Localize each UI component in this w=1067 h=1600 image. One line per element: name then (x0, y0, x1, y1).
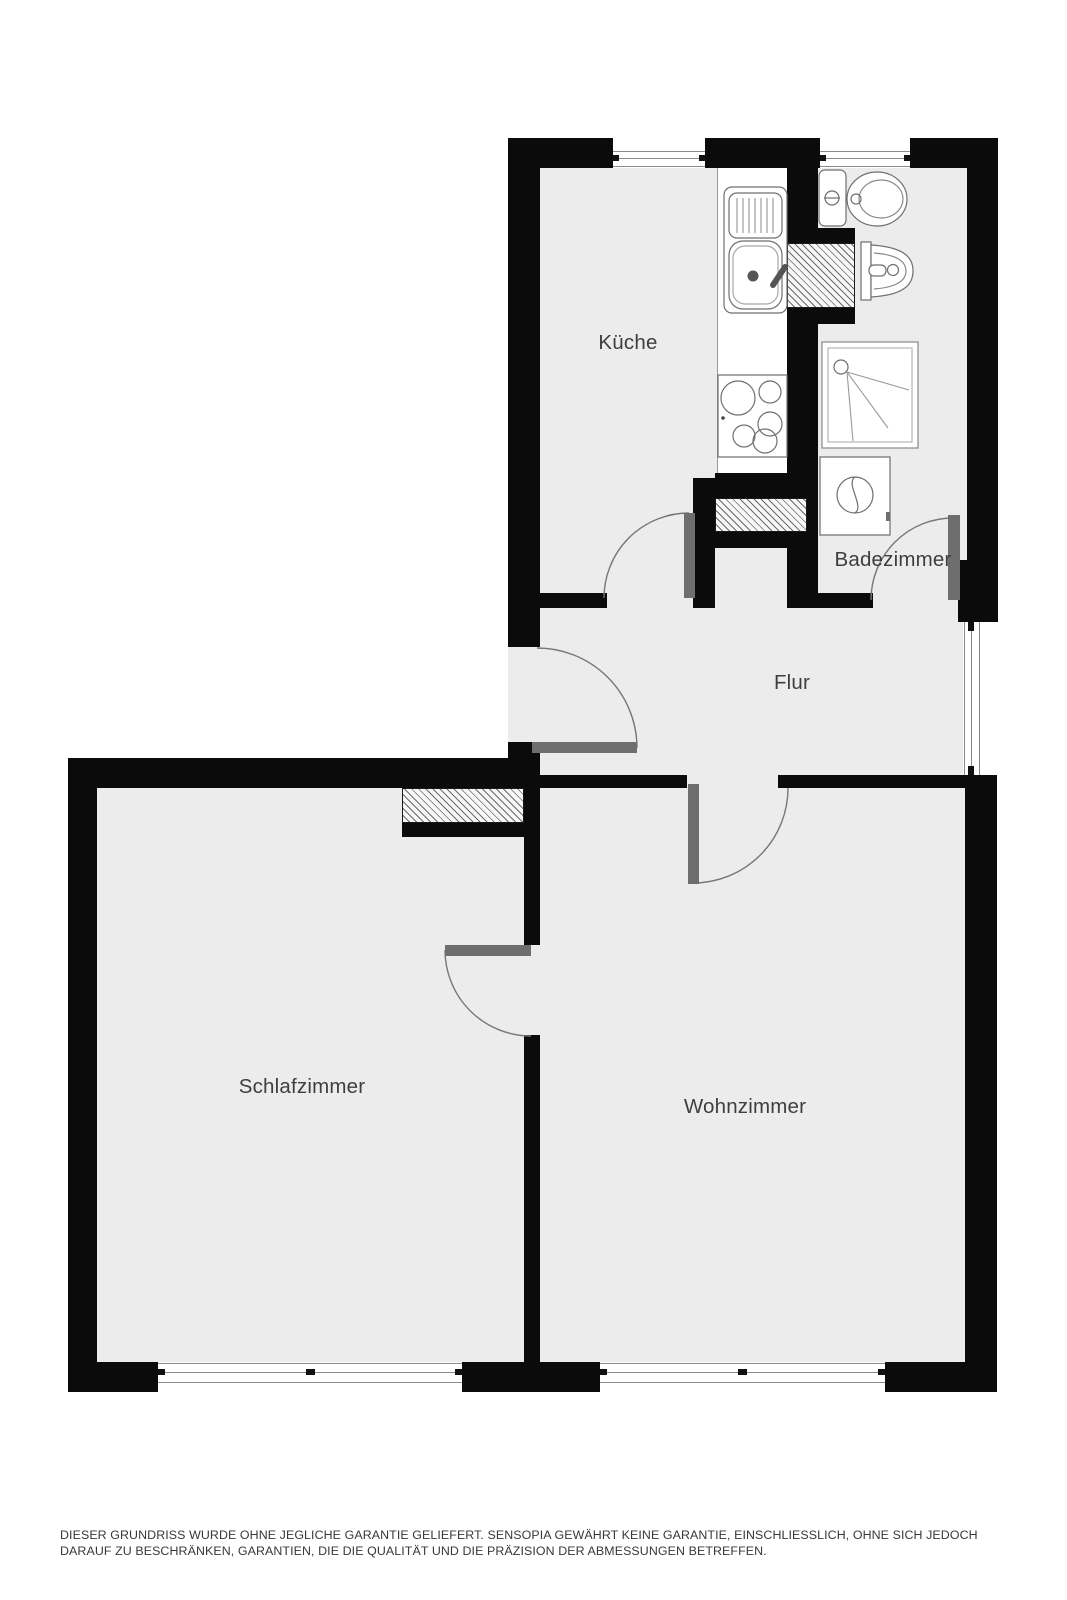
wall-left-upper (508, 138, 540, 647)
shaft-hatch-bad (787, 243, 855, 308)
floor-entry-threshold (508, 647, 540, 742)
schlafzimmer-door-leaf (445, 945, 531, 956)
window-tick (699, 155, 705, 161)
wall-schlafzimmer-top (68, 758, 540, 788)
kueche-door-leaf (684, 513, 695, 598)
kitchen-counter (717, 168, 787, 473)
window-line (964, 622, 965, 775)
wall-bad-bottom (807, 593, 873, 608)
window-line (979, 622, 980, 775)
wall-right-upper (967, 138, 998, 622)
window-line (613, 158, 705, 159)
window-tick (738, 1369, 747, 1375)
window-line (613, 166, 705, 167)
badezimmer-window (820, 138, 910, 168)
window-tick (968, 766, 974, 775)
window-tick (158, 1369, 165, 1375)
window-line (158, 1363, 462, 1364)
wall-kueche-door-stub (693, 478, 715, 608)
window-tick (613, 155, 619, 161)
floor-wohnzimmer-doorway (687, 775, 778, 788)
wall-shaft-kueche-bottom (715, 532, 787, 548)
window-tick (600, 1369, 607, 1375)
window-line (971, 622, 972, 775)
window-line (613, 151, 705, 152)
wall-room-divider-upper (524, 753, 540, 945)
room-label-kueche: Küche (598, 331, 657, 355)
room-label-flur: Flur (774, 671, 810, 695)
wall-shaft-schlaf-bottom (402, 823, 524, 837)
wall-shaft-bad-top (787, 228, 855, 243)
room-label-schlafzimmer: Schlafzimmer (239, 1075, 366, 1099)
wall-left-lower (68, 758, 97, 1392)
window-tick (878, 1369, 885, 1375)
shaft-hatch-kueche (715, 498, 807, 532)
window-tick (455, 1369, 462, 1375)
wall-shaft-kueche-top (715, 473, 787, 498)
room-label-badezimmer: Badezimmer (834, 548, 951, 572)
floorplan-page: Küche Badezimmer Flur Schlafzimmer Wohnz… (0, 0, 1067, 1600)
wall-bottom-a (68, 1362, 158, 1392)
wall-right-lower (965, 775, 997, 1392)
window-line (820, 158, 910, 159)
room-label-wohnzimmer: Wohnzimmer (684, 1095, 806, 1119)
kueche-window (613, 138, 705, 168)
entry-door-leaf (532, 742, 637, 753)
window-line (158, 1382, 462, 1383)
window-tick (904, 155, 910, 161)
wall-top-b (705, 138, 820, 168)
wohnzimmer-window (600, 1362, 885, 1392)
wall-wohnzimmer-top-a (540, 775, 687, 788)
window-line (820, 166, 910, 167)
window-tick (968, 622, 974, 631)
schlafzimmer-window (158, 1362, 462, 1392)
window-tick (820, 155, 826, 161)
wall-shaft-bad-bottom (787, 308, 855, 324)
window-line (820, 151, 910, 152)
wall-wohnzimmer-top-b (778, 775, 967, 788)
wall-bad-corner (958, 560, 998, 622)
wall-room-divider-lower (524, 1035, 540, 1392)
shaft-hatch-schlafzimmer (402, 788, 524, 823)
window-tick (306, 1369, 315, 1375)
wohnzimmer-door-leaf (688, 784, 699, 884)
window-line (600, 1382, 885, 1383)
window-line (600, 1363, 885, 1364)
disclaimer-text: DIESER GRUNDRISS WURDE OHNE JEGLICHE GAR… (60, 1528, 1012, 1559)
flur-window (963, 622, 981, 775)
wall-kueche-bottom (540, 593, 607, 608)
